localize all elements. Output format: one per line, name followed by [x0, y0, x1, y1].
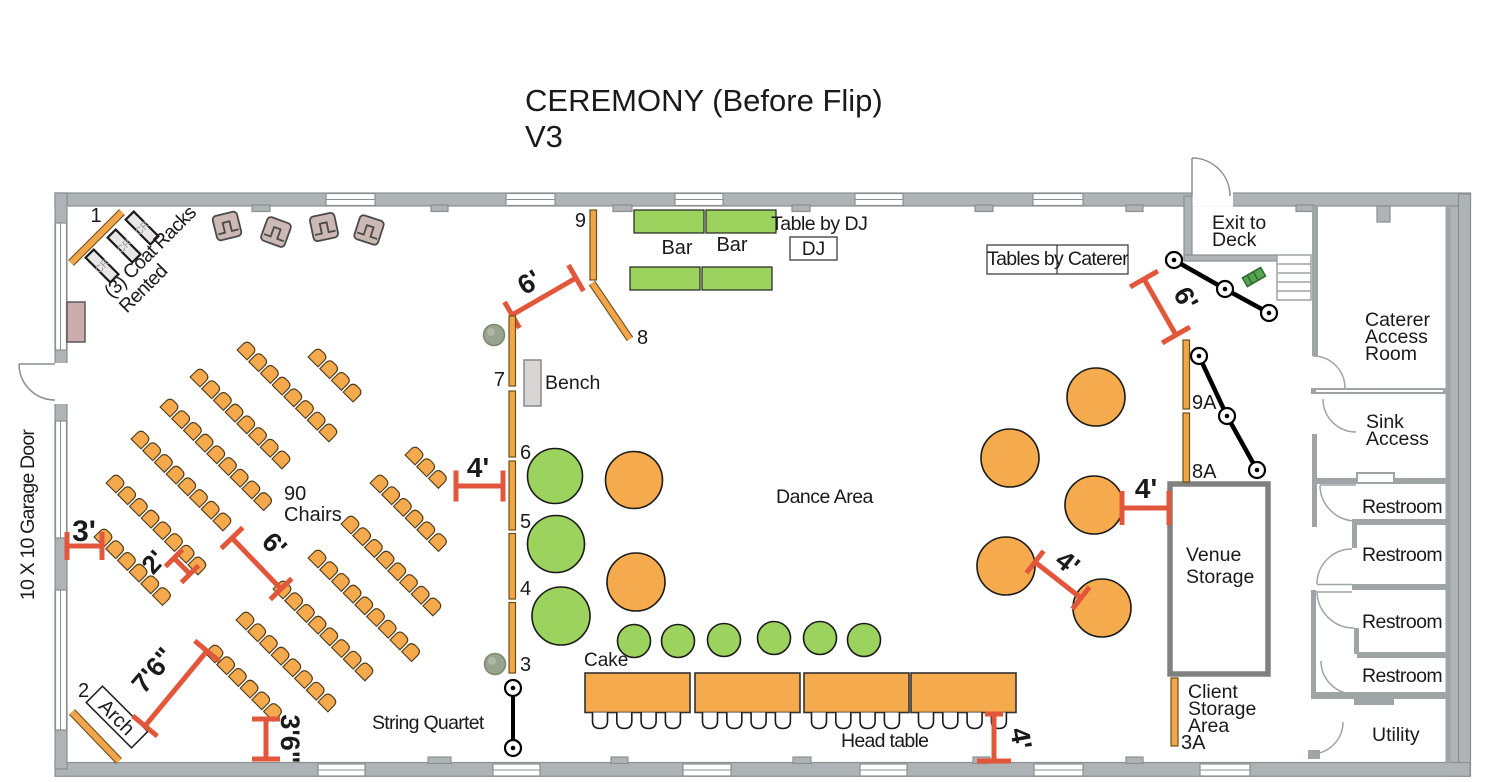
svg-text:Access: Access — [1366, 428, 1429, 450]
svg-text:Room: Room — [1365, 343, 1417, 365]
svg-text:3': 3' — [72, 515, 96, 548]
svg-text:4: 4 — [520, 578, 531, 600]
svg-text:3A: 3A — [1181, 732, 1206, 754]
svg-text:1: 1 — [90, 205, 101, 227]
svg-text:Table by DJ: Table by DJ — [771, 213, 867, 235]
svg-text:Chairs: Chairs — [284, 504, 342, 526]
svg-text:3'6": 3'6" — [275, 714, 305, 763]
svg-text:2: 2 — [78, 680, 89, 702]
svg-text:9A: 9A — [1192, 392, 1217, 414]
svg-text:10 X 10 Garage Door: 10 X 10 Garage Door — [17, 429, 39, 600]
svg-text:DJ: DJ — [802, 239, 825, 260]
svg-text:6': 6' — [256, 526, 292, 562]
svg-text:8: 8 — [637, 327, 648, 349]
svg-text:6': 6' — [1167, 282, 1204, 316]
svg-text:Restroom: Restroom — [1362, 665, 1442, 687]
svg-text:4': 4' — [467, 452, 489, 483]
svg-text:Utility: Utility — [1372, 724, 1420, 746]
svg-text:4': 4' — [1135, 473, 1157, 504]
svg-text:Bar: Bar — [661, 237, 692, 259]
svg-text:CEREMONY (Before Flip): CEREMONY (Before Flip) — [525, 83, 883, 118]
svg-text:Venue: Venue — [1186, 544, 1241, 566]
svg-text:6: 6 — [520, 442, 531, 464]
svg-text:9: 9 — [575, 210, 586, 232]
svg-text:V3: V3 — [525, 119, 563, 154]
svg-text:7: 7 — [494, 369, 505, 391]
svg-text:Restroom: Restroom — [1362, 496, 1442, 518]
svg-text:4': 4' — [1004, 725, 1037, 751]
svg-text:5: 5 — [520, 511, 531, 533]
svg-text:Deck: Deck — [1212, 229, 1257, 251]
svg-text:Restroom: Restroom — [1362, 611, 1442, 633]
svg-text:8A: 8A — [1192, 461, 1217, 483]
svg-text:Cake: Cake — [584, 650, 628, 671]
svg-text:Bench: Bench — [545, 372, 600, 394]
svg-text:6': 6' — [512, 264, 546, 301]
svg-text:Restroom: Restroom — [1362, 544, 1442, 566]
svg-text:Storage: Storage — [1186, 566, 1254, 588]
svg-text:Dance Area: Dance Area — [776, 486, 874, 508]
svg-text:Head table: Head table — [841, 730, 928, 752]
svg-text:Tables by Caterer: Tables by Caterer — [987, 248, 1129, 270]
svg-text:3: 3 — [520, 654, 531, 676]
svg-text:Bar: Bar — [716, 234, 747, 256]
svg-text:90: 90 — [284, 483, 306, 505]
svg-text:String Quartet: String Quartet — [372, 712, 485, 734]
